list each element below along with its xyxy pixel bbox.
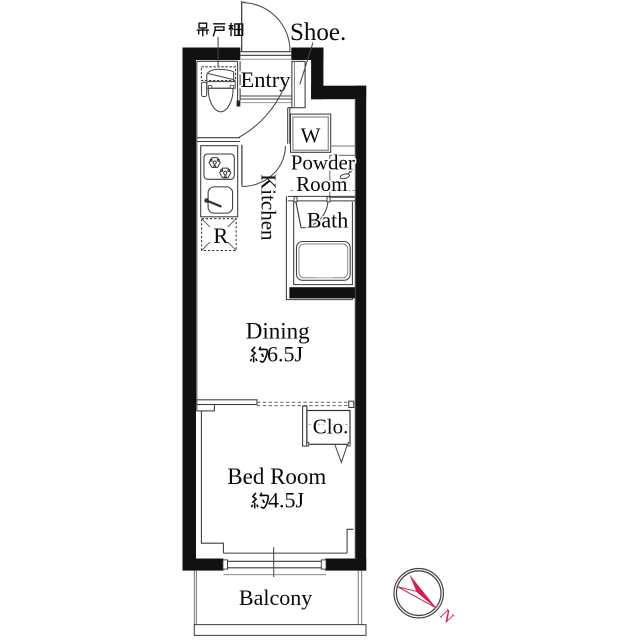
svg-text:R: R	[213, 223, 228, 248]
svg-text:4.5J: 4.5J	[268, 488, 305, 513]
svg-text:Clo.: Clo.	[313, 415, 349, 439]
svg-text:6.5J: 6.5J	[267, 342, 304, 367]
svg-text:Room: Room	[296, 172, 347, 196]
svg-text:Kitchen: Kitchen	[257, 174, 281, 241]
svg-text:Bed Room: Bed Room	[227, 464, 326, 489]
svg-text:Dining: Dining	[246, 319, 310, 344]
svg-text:W: W	[301, 124, 321, 148]
svg-text:Bath: Bath	[307, 208, 349, 233]
svg-text:Shoe.: Shoe.	[290, 19, 346, 46]
svg-text:Balcony: Balcony	[239, 585, 312, 610]
